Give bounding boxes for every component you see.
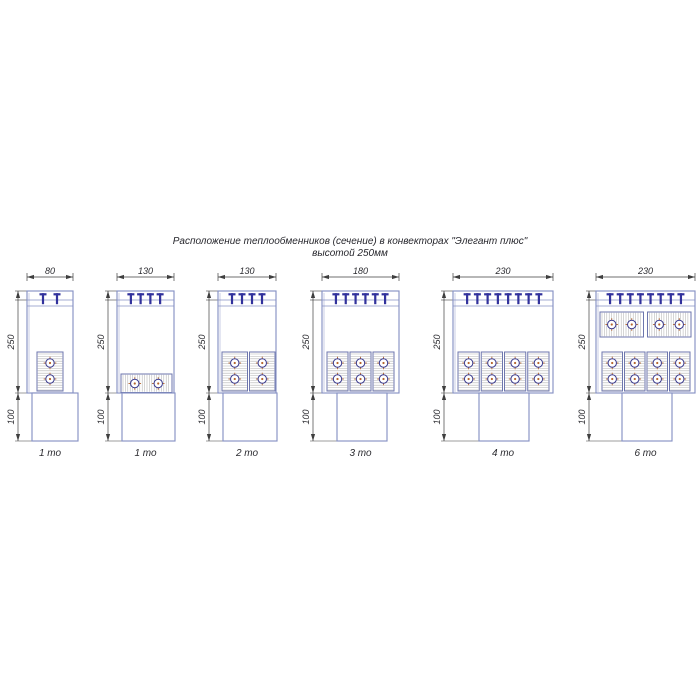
dimension-arrow xyxy=(167,275,174,279)
grille-slat-stem xyxy=(251,293,253,304)
grille-slat-stem xyxy=(241,293,243,304)
height-dimension-label-upper: 250 xyxy=(301,334,311,350)
dimension-arrow xyxy=(311,291,315,298)
dimension-arrow xyxy=(106,434,110,441)
grille-slat-stem xyxy=(384,293,386,304)
convector-drawing-1: 802501001 то xyxy=(6,266,78,459)
grille-slat-stem xyxy=(497,293,499,304)
dimension-arrow xyxy=(16,393,20,400)
tube-center xyxy=(157,382,159,384)
height-dimension-label-upper: 250 xyxy=(6,334,16,350)
tube-center xyxy=(234,362,236,364)
tube-center xyxy=(679,378,681,380)
grille-slat-stem xyxy=(261,293,263,304)
convector-drawing-5: 2302501004 то xyxy=(432,266,553,459)
dimension-arrow xyxy=(442,386,446,393)
drawing-label: 1 то xyxy=(134,448,157,459)
grille-slat-stem xyxy=(538,293,540,304)
grille-slat-stem xyxy=(159,293,161,304)
tube-center xyxy=(679,362,681,364)
pedestal-outline xyxy=(223,393,277,441)
tube-center xyxy=(491,378,493,380)
tube-center xyxy=(382,362,384,364)
dimension-arrow xyxy=(587,393,591,400)
width-dimension-label: 180 xyxy=(353,266,368,276)
dimension-arrow xyxy=(442,393,446,400)
tube-center xyxy=(631,323,633,325)
dimension-arrow xyxy=(207,434,211,441)
width-dimension-label: 230 xyxy=(494,266,510,276)
height-dimension-label-lower: 100 xyxy=(301,409,311,424)
drawing-label: 3 то xyxy=(349,448,372,459)
tube-center xyxy=(537,378,539,380)
tube-center xyxy=(359,378,361,380)
drawing-label: 4 то xyxy=(492,448,515,459)
tube-center xyxy=(234,378,236,380)
tube-center xyxy=(382,378,384,380)
tube-center xyxy=(514,378,516,380)
pedestal-outline xyxy=(32,393,78,441)
grille-slat-stem xyxy=(476,293,478,304)
grille-slat-stem xyxy=(354,293,356,304)
grille-slat-stem xyxy=(140,293,142,304)
grille-slat-stem xyxy=(149,293,151,304)
dimension-arrow xyxy=(16,291,20,298)
grille-slat-stem xyxy=(517,293,519,304)
pedestal-outline xyxy=(122,393,175,441)
tube-center xyxy=(336,378,338,380)
tube-center xyxy=(611,362,613,364)
tube-center xyxy=(261,362,263,364)
height-dimension-label-upper: 250 xyxy=(432,334,442,350)
convector-drawing-3: 1302501002 то xyxy=(197,266,277,459)
grille-slat-stem xyxy=(335,293,337,304)
tube-center xyxy=(134,382,136,384)
grille-slat-stem xyxy=(639,293,641,304)
width-dimension-label: 80 xyxy=(45,266,55,276)
width-dimension-label: 130 xyxy=(138,266,153,276)
grille-slat-stem xyxy=(42,293,44,304)
tube-center xyxy=(491,362,493,364)
dimension-arrow xyxy=(392,275,399,279)
grille-slat-stem xyxy=(649,293,651,304)
drawing-sheet: Расположение теплообменников (сечение) в… xyxy=(0,0,700,700)
dimension-arrow xyxy=(269,275,276,279)
height-dimension-label-lower: 100 xyxy=(197,409,207,424)
tube-center xyxy=(634,378,636,380)
grille-slat-stem xyxy=(609,293,611,304)
grille-slat-stem xyxy=(680,293,682,304)
width-dimension-label: 230 xyxy=(637,266,653,276)
grille-slat-stem xyxy=(507,293,509,304)
diagram-canvas: 802501001 то1302501001 то1302501002 то18… xyxy=(0,0,700,700)
tube-center xyxy=(359,362,361,364)
tube-center xyxy=(634,362,636,364)
width-dimension-label: 130 xyxy=(239,266,254,276)
dimension-arrow xyxy=(442,291,446,298)
height-dimension-label-upper: 250 xyxy=(197,334,207,350)
tube-center xyxy=(261,378,263,380)
grille-slat-stem xyxy=(345,293,347,304)
dimension-arrow xyxy=(27,275,34,279)
grille-slat-stem xyxy=(466,293,468,304)
dimension-arrow xyxy=(106,393,110,400)
tube-center xyxy=(49,378,51,380)
tube-center xyxy=(611,323,613,325)
dimension-arrow xyxy=(117,275,124,279)
convector-drawing-6: 2302501006 то xyxy=(577,266,695,459)
pedestal-outline xyxy=(479,393,529,441)
tube-center xyxy=(656,362,658,364)
dimension-arrow xyxy=(546,275,553,279)
tube-center xyxy=(514,362,516,364)
tube-center xyxy=(656,378,658,380)
tube-center xyxy=(468,378,470,380)
tube-center xyxy=(537,362,539,364)
grille-slat-stem xyxy=(629,293,631,304)
grille-slat-stem xyxy=(364,293,366,304)
height-dimension-label-upper: 250 xyxy=(577,334,587,350)
dimension-arrow xyxy=(106,291,110,298)
height-dimension-label-lower: 100 xyxy=(577,409,587,424)
dimension-arrow xyxy=(322,275,329,279)
height-dimension-label-upper: 250 xyxy=(96,334,106,350)
pedestal-outline xyxy=(622,393,672,441)
grille-slat-stem xyxy=(528,293,530,304)
grille-slat-stem xyxy=(130,293,132,304)
sheet-title-line2: высотой 250мм xyxy=(0,248,700,260)
drawing-label: 2 то xyxy=(235,448,259,459)
tube-center xyxy=(611,378,613,380)
grille-slat-stem xyxy=(374,293,376,304)
dimension-arrow xyxy=(688,275,695,279)
sheet-title: Расположение теплообменников (сечение) в… xyxy=(0,236,700,259)
dimension-arrow xyxy=(587,386,591,393)
tube-center xyxy=(468,362,470,364)
dimension-arrow xyxy=(587,291,591,298)
grille-slat-stem xyxy=(670,293,672,304)
dimension-arrow xyxy=(16,386,20,393)
drawing-label: 1 то xyxy=(39,448,62,459)
grille-slat-stem xyxy=(487,293,489,304)
tube-center xyxy=(658,323,660,325)
dimension-arrow xyxy=(453,275,460,279)
dimension-arrow xyxy=(207,386,211,393)
height-dimension-label-lower: 100 xyxy=(432,409,442,424)
dimension-arrow xyxy=(311,393,315,400)
grille-slat-stem xyxy=(619,293,621,304)
convector-drawing-2: 1302501001 то xyxy=(96,266,175,459)
grille-slat-stem xyxy=(56,293,58,304)
dimension-arrow xyxy=(207,393,211,400)
dimension-arrow xyxy=(66,275,73,279)
dimension-arrow xyxy=(587,434,591,441)
grille-slat-stem xyxy=(660,293,662,304)
tube-center xyxy=(678,323,680,325)
height-dimension-label-lower: 100 xyxy=(6,409,16,424)
grille-slat-stem xyxy=(231,293,233,304)
pedestal-outline xyxy=(337,393,387,441)
dimension-arrow xyxy=(442,434,446,441)
sheet-title-line1: Расположение теплообменников (сечение) в… xyxy=(0,236,700,248)
tube-center xyxy=(49,362,51,364)
dimension-arrow xyxy=(311,434,315,441)
dimension-arrow xyxy=(311,386,315,393)
dimension-arrow xyxy=(207,291,211,298)
drawing-label: 6 то xyxy=(634,448,657,459)
tube-center xyxy=(336,362,338,364)
dimension-arrow xyxy=(106,386,110,393)
dimension-arrow xyxy=(16,434,20,441)
dimension-arrow xyxy=(218,275,225,279)
height-dimension-label-lower: 100 xyxy=(96,409,106,424)
dimension-arrow xyxy=(596,275,603,279)
convector-drawing-4: 1802501003 то xyxy=(301,266,399,459)
